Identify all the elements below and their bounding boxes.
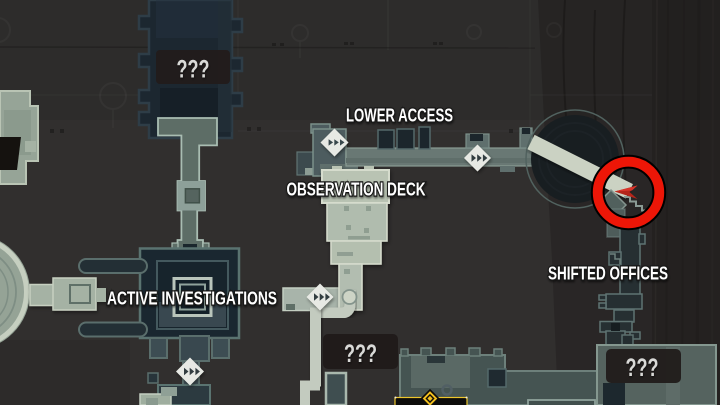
svg-text:LOWER ACCESS: LOWER ACCESS [346,106,453,126]
svg-text:SHIFTED OFFICES: SHIFTED OFFICES [548,264,668,284]
svg-text:ACTIVE INVESTIGATIONS: ACTIVE INVESTIGATIONS [107,287,277,308]
svg-text:???: ??? [177,56,210,84]
svg-text:???: ??? [344,340,377,368]
svg-text:OBSERVATION DECK: OBSERVATION DECK [287,180,426,200]
svg-text:???: ??? [626,354,659,382]
